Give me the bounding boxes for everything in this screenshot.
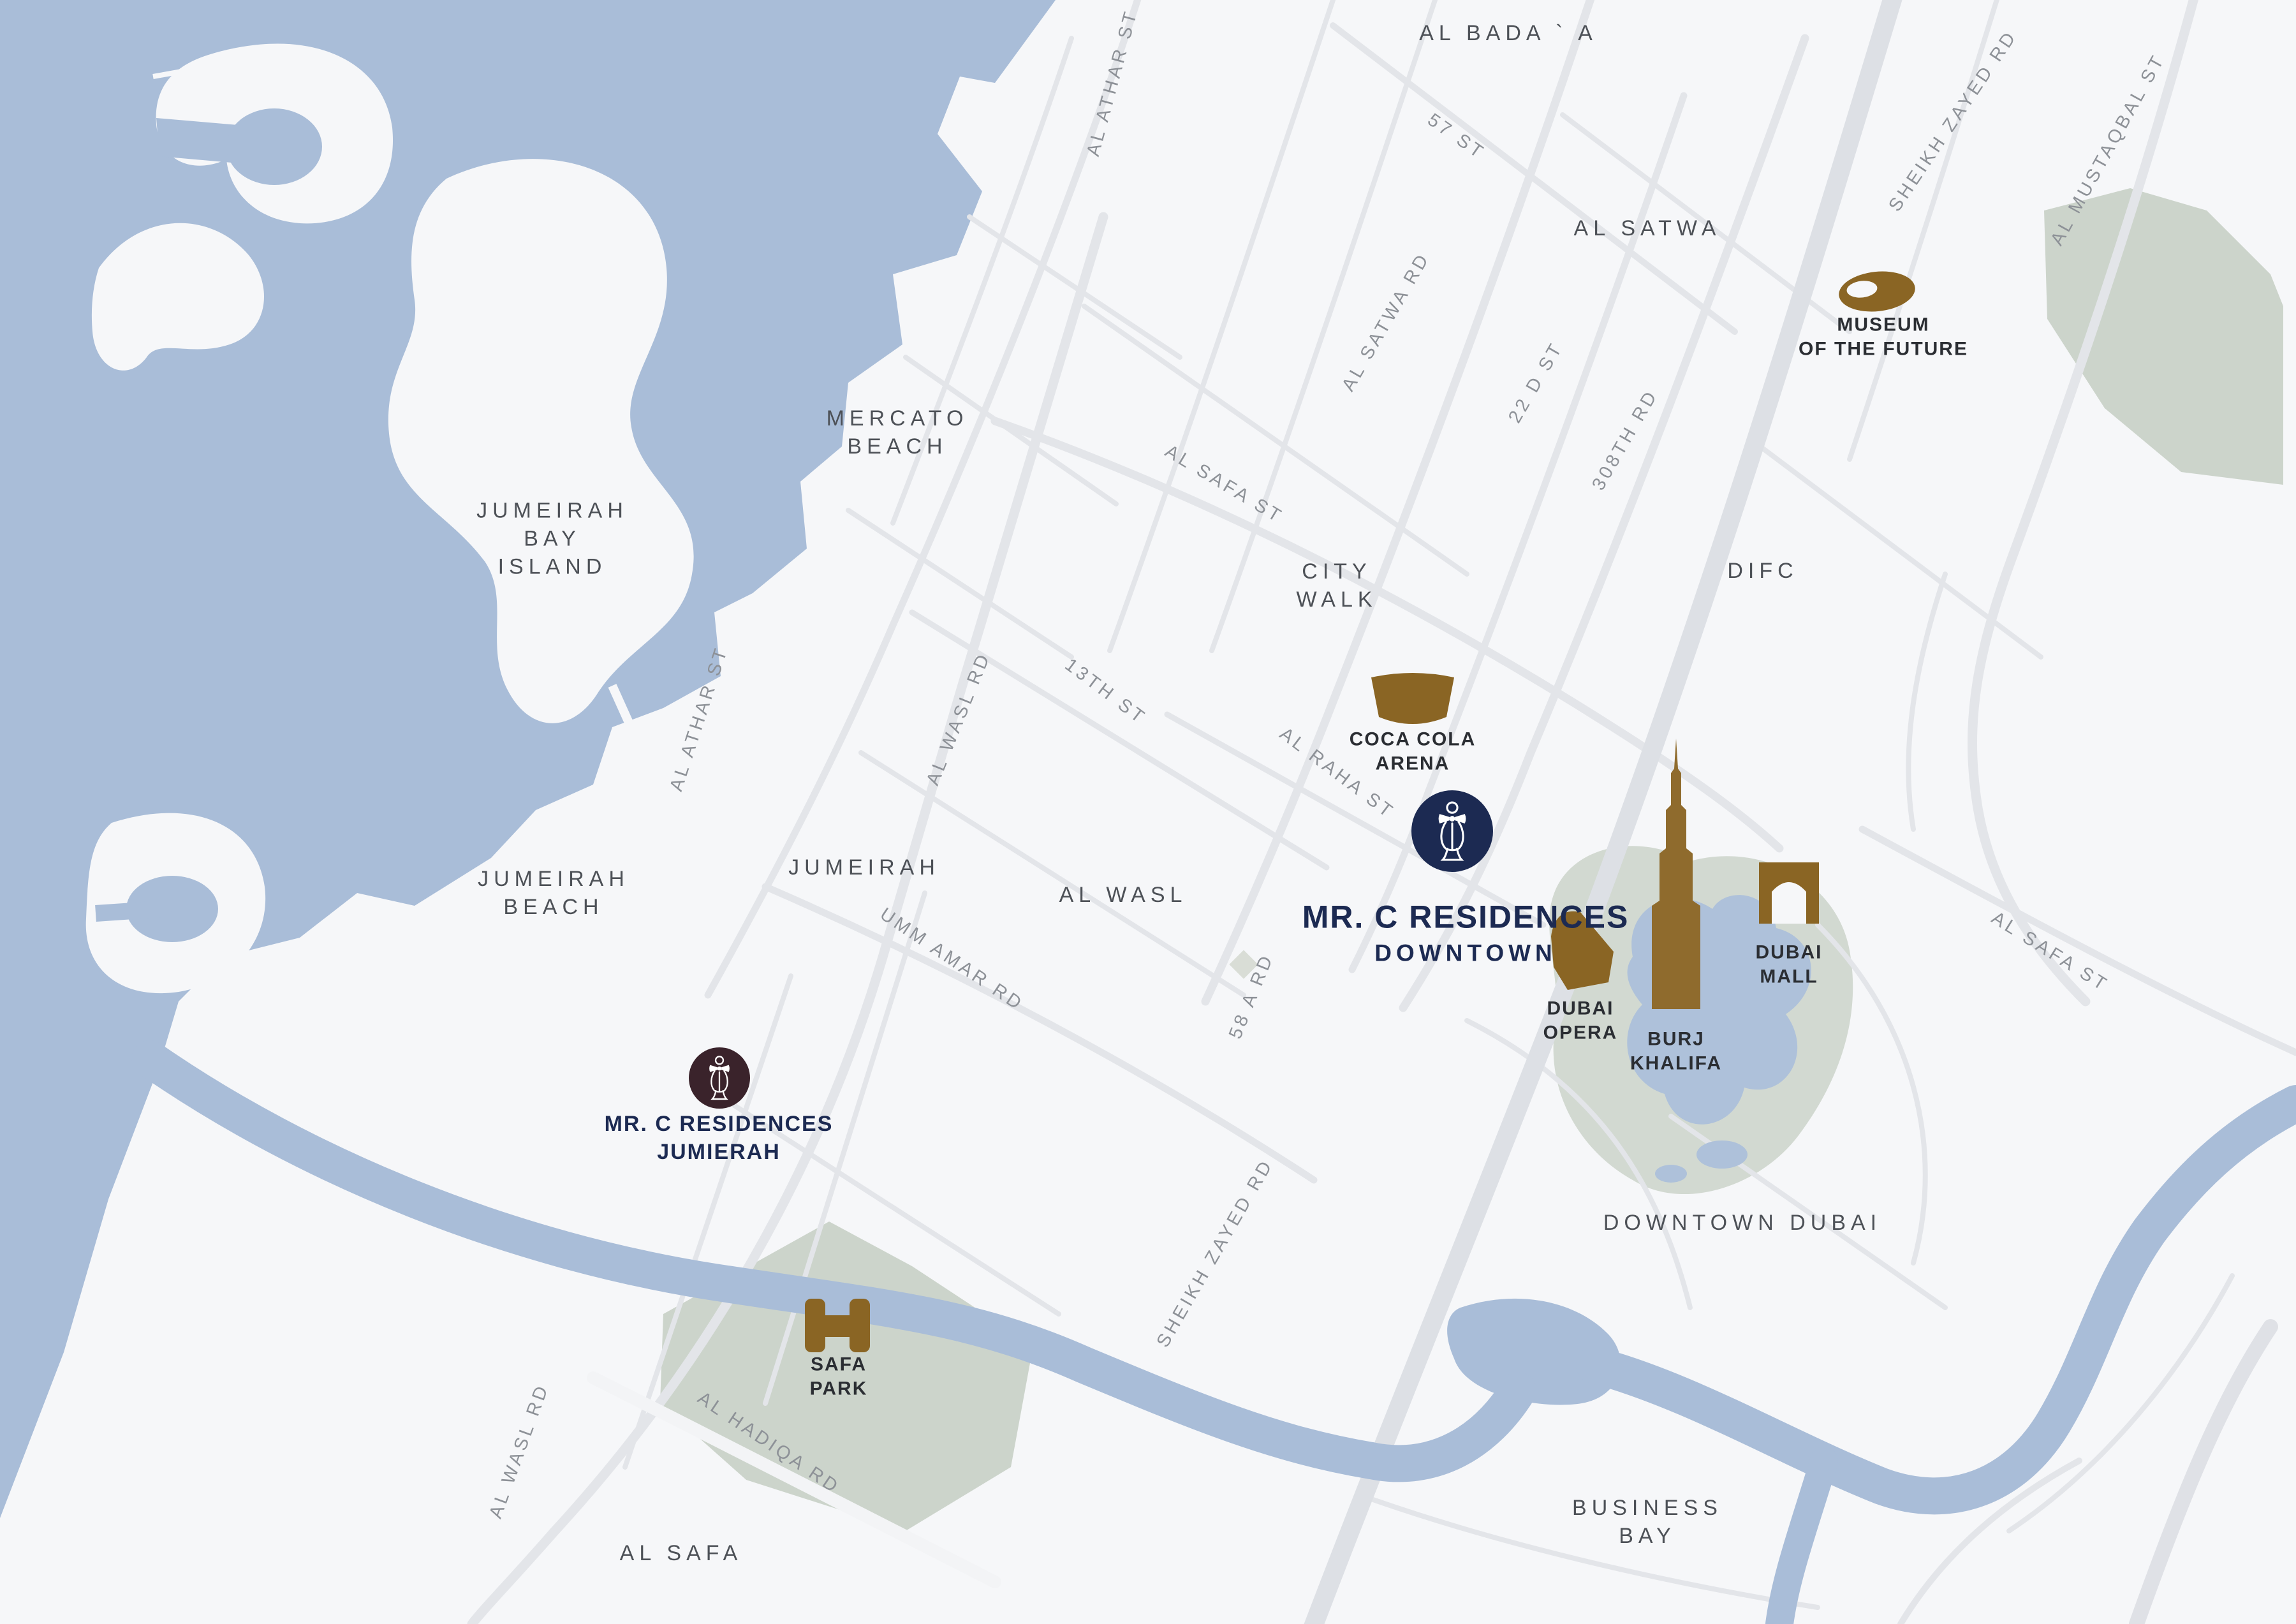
map-canvas [0, 0, 2296, 1624]
district-label-mercato-beach: MERCATOBEACH [827, 404, 969, 461]
poi-label-museum-of-the-future: MUSEUM OF THE FUTURE [1799, 313, 1968, 361]
district-label-downtown-dubai: DOWNTOWN DUBAI [1603, 1209, 1881, 1237]
dubai-location-map: AL BADA ` A AL SATWA MERCATOBEACH JUMEIR… [0, 0, 2296, 1624]
mr-c-downtown-marker [1411, 790, 1493, 872]
mr-c-jumierah-marker [689, 1047, 750, 1109]
museum-torus-icon [1837, 268, 1917, 315]
district-label-jumeirah: JUMEIRAH [788, 853, 940, 882]
district-label-difc: DIFC [1727, 557, 1798, 585]
arch-gate-icon [1759, 862, 1819, 924]
poi-label-safa-park: SAFA PARK [810, 1353, 868, 1401]
district-label-al-bada: AL BADA ` A [1419, 19, 1598, 47]
poi-label-burj-khalifa: BURJ KHALIFA [1630, 1028, 1722, 1075]
district-label-city-walk: CITYWALK [1296, 557, 1377, 614]
poi-label-dubai-mall: DUBAI MALL [1756, 941, 1823, 989]
district-label-al-satwa: AL SATWA [1574, 214, 1721, 242]
district-label-al-wasl: AL WASL [1059, 881, 1188, 909]
peninsula-shape [86, 813, 265, 993]
district-label-al-safa: AL SAFA [620, 1539, 743, 1567]
district-label-jumeirah-beach: JUMEIRAHBEACH [478, 865, 629, 921]
arena-bowl-icon [1371, 673, 1454, 724]
poi-label-coca-cola-arena: COCA COLA ARENA [1350, 728, 1476, 776]
poi-label-mr-c-residences-jumierah: MR. C RESIDENCES JUMIERAH [605, 1110, 834, 1166]
district-label-jumeirah-bay-island: JUMEIRAH BAY ISLAND [476, 497, 628, 582]
district-label-business-bay: BUSINESSBAY [1572, 1494, 1723, 1550]
poi-label-mr-c-residences-downtown: MR. C RESIDENCES DOWNTOWN [1302, 896, 1630, 968]
poi-label-dubai-opera: DUBAI OPERA [1543, 997, 1618, 1045]
